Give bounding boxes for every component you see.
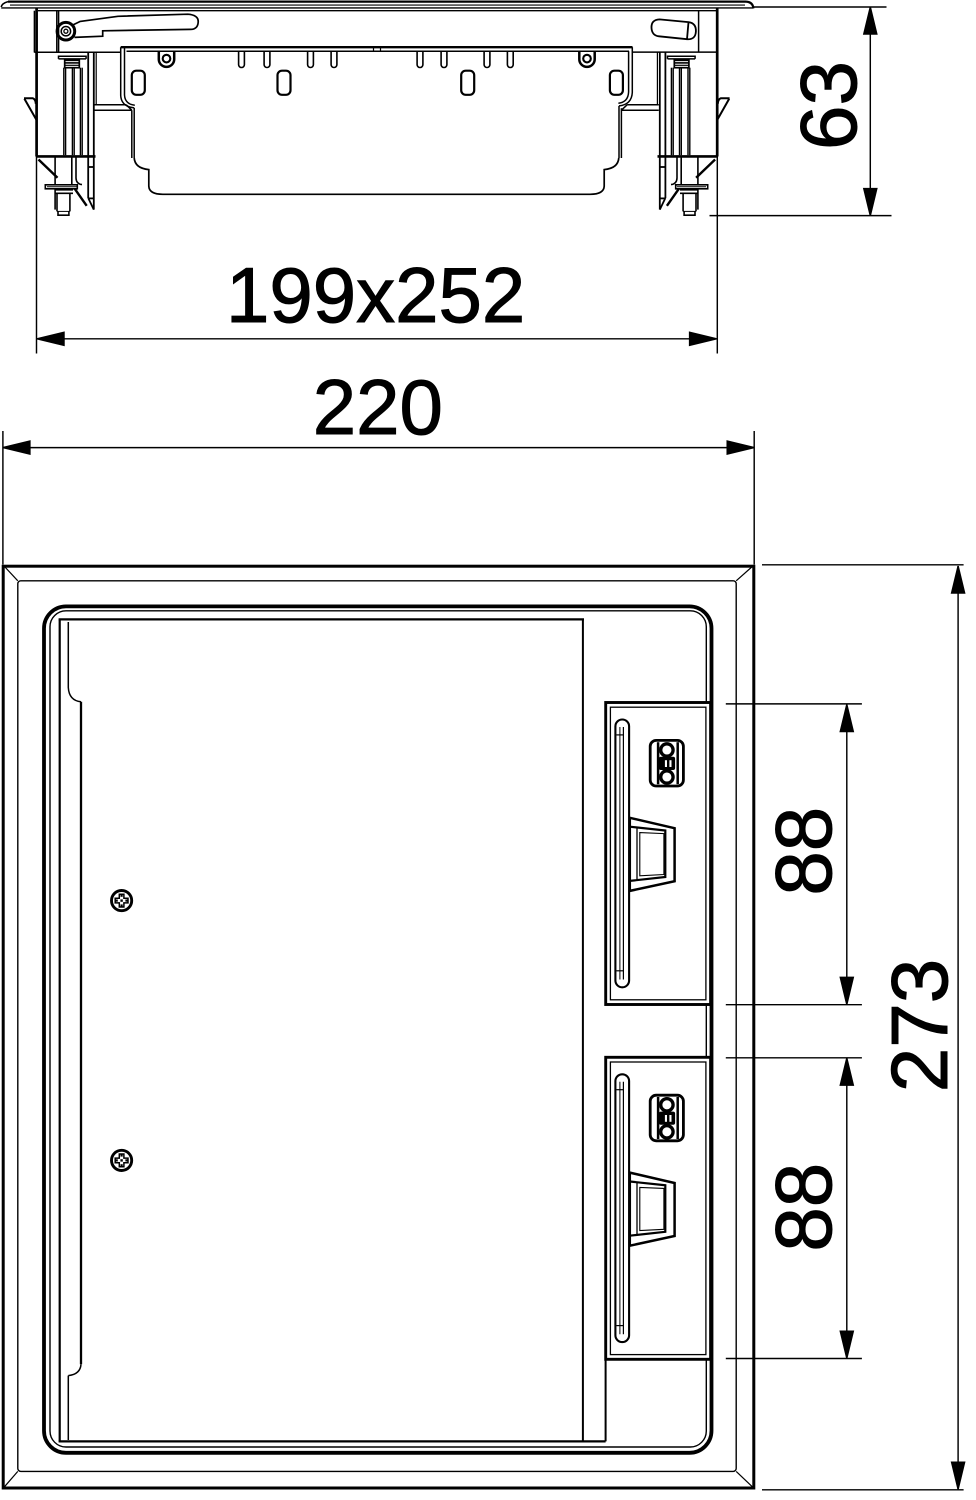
svg-text:63: 63	[784, 61, 873, 150]
svg-text:88: 88	[759, 807, 848, 896]
svg-text:88: 88	[759, 1163, 848, 1252]
svg-text:199x252: 199x252	[226, 251, 525, 339]
svg-text:273: 273	[875, 959, 964, 1092]
svg-text:220: 220	[313, 363, 443, 451]
